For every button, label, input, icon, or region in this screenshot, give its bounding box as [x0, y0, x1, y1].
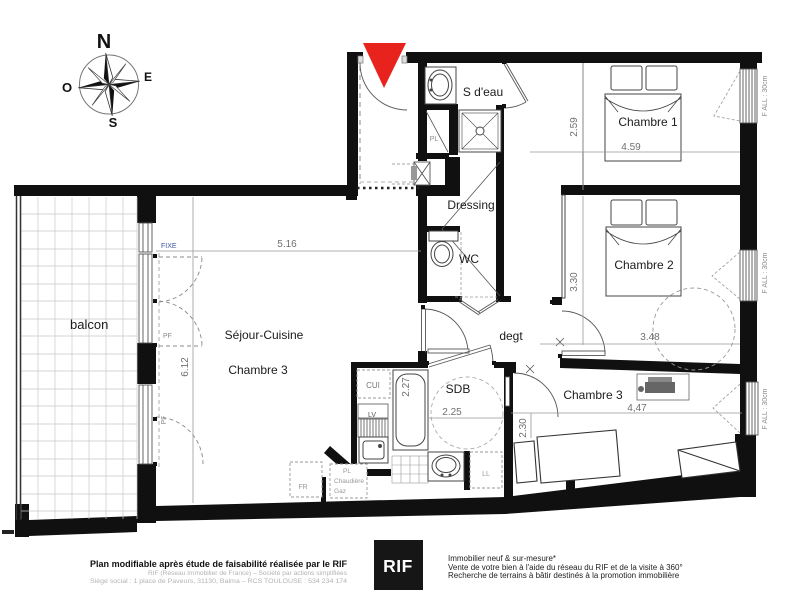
- svg-text:LV: LV: [368, 412, 376, 419]
- svg-text:PF: PF: [161, 416, 168, 425]
- svg-text:FR: FR: [298, 484, 307, 491]
- svg-text:2.59: 2.59: [569, 117, 580, 137]
- svg-text:6.12: 6.12: [180, 357, 191, 377]
- svg-text:Siège social : 1 place de Pave: Siège social : 1 place de Paveurs, 31130…: [90, 578, 347, 585]
- svg-text:balcon: balcon: [70, 317, 108, 332]
- svg-text:WC: WC: [459, 252, 479, 266]
- svg-text:RIF (Réseau Immobilier de Fran: RIF (Réseau Immobilier de France) – Soci…: [148, 570, 348, 577]
- svg-text:Séjour-Cuisine: Séjour-Cuisine: [225, 328, 304, 342]
- svg-text:2.25: 2.25: [442, 407, 462, 418]
- svg-text:3.48: 3.48: [640, 332, 660, 343]
- svg-text:Chambre 3: Chambre 3: [563, 388, 623, 402]
- svg-text:CUI: CUI: [366, 381, 380, 390]
- svg-text:Gaz: Gaz: [334, 488, 346, 495]
- svg-text:2.27: 2.27: [401, 377, 412, 397]
- svg-text:LL: LL: [482, 471, 490, 478]
- svg-text:4.59: 4.59: [621, 142, 641, 153]
- svg-text:degt: degt: [499, 329, 523, 343]
- svg-text:Chambre 3: Chambre 3: [228, 363, 288, 377]
- svg-text:Chambre 1: Chambre 1: [618, 115, 678, 129]
- svg-text:F ALL : 30cm: F ALL : 30cm: [762, 388, 769, 429]
- svg-text:Dressing: Dressing: [447, 198, 494, 212]
- svg-text:N: N: [97, 31, 111, 53]
- svg-text:SDB: SDB: [446, 382, 471, 396]
- svg-text:S d'eau: S d'eau: [463, 85, 503, 99]
- svg-text:Plan modifiable après étude de: Plan modifiable après étude de faisabili…: [90, 559, 348, 569]
- svg-text:Recherche de terrains à bâtir: Recherche de terrains à bâtir destinés à…: [448, 571, 680, 580]
- svg-text:5.16: 5.16: [277, 239, 297, 250]
- svg-text:3.30: 3.30: [569, 272, 580, 292]
- svg-text:Chaudière: Chaudière: [334, 478, 364, 485]
- svg-text:O: O: [62, 80, 72, 95]
- svg-text:Chambre 2: Chambre 2: [614, 258, 674, 272]
- svg-text:PL: PL: [343, 468, 351, 475]
- svg-text:PF: PF: [163, 333, 172, 340]
- svg-text:4,47: 4,47: [627, 403, 647, 414]
- svg-text:FIXE: FIXE: [161, 243, 177, 250]
- svg-text:F ALL : 30cm: F ALL : 30cm: [762, 252, 769, 293]
- svg-text:Immobilier neuf & sur-mesure*: Immobilier neuf & sur-mesure*: [448, 554, 556, 563]
- svg-text:2.30: 2.30: [518, 418, 529, 438]
- svg-text:F ALL : 30cm: F ALL : 30cm: [762, 75, 769, 116]
- svg-text:PL: PL: [430, 136, 439, 143]
- svg-text:RIF: RIF: [383, 556, 413, 576]
- svg-text:E: E: [144, 70, 152, 84]
- svg-text:S: S: [109, 115, 118, 130]
